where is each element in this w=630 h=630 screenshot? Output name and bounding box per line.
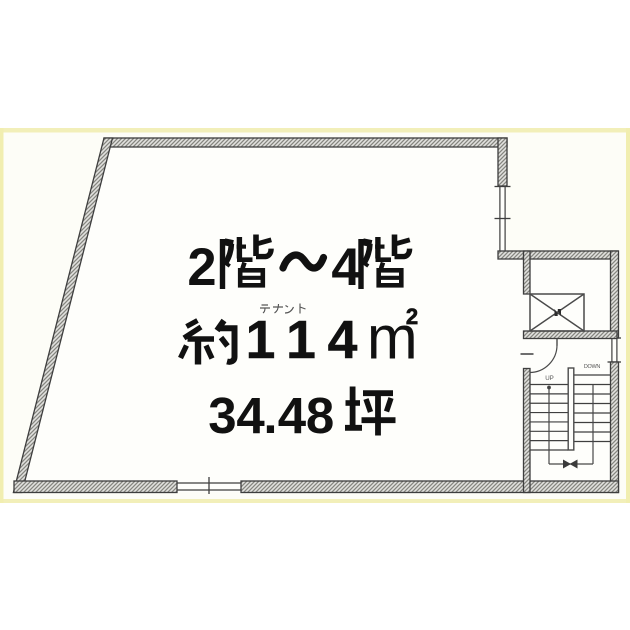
svg-text:2: 2: [187, 238, 216, 297]
svg-text:4: 4: [236, 387, 265, 444]
svg-text:DOWN: DOWN: [584, 364, 601, 370]
svg-text:2: 2: [406, 304, 418, 329]
svg-text:.: .: [263, 387, 277, 444]
svg-text:4: 4: [331, 238, 360, 297]
svg-text:1: 1: [286, 311, 316, 370]
svg-text:8: 8: [306, 387, 334, 444]
svg-text:3: 3: [208, 387, 236, 444]
svg-text:UP: UP: [545, 375, 554, 382]
svg-text:4: 4: [328, 311, 358, 370]
svg-text:4: 4: [278, 387, 307, 444]
svg-text:1: 1: [246, 311, 276, 370]
